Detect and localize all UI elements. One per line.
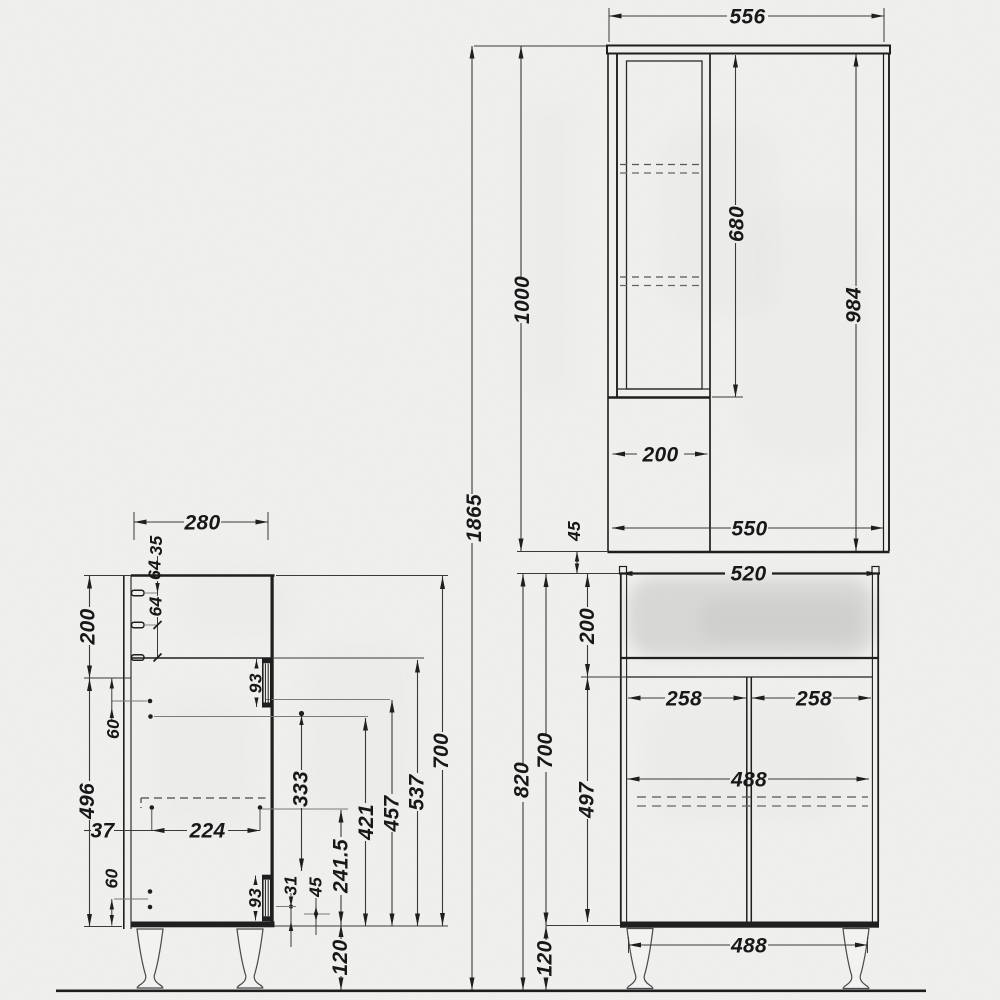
svg-text:60: 60 [103, 719, 123, 739]
svg-text:680: 680 [726, 206, 749, 242]
svg-text:93: 93 [245, 888, 265, 908]
svg-text:200: 200 [77, 609, 100, 646]
svg-text:984: 984 [843, 287, 866, 323]
svg-text:258: 258 [795, 688, 832, 711]
svg-text:37: 37 [91, 820, 116, 843]
svg-text:241.5: 241.5 [330, 839, 353, 894]
svg-text:31: 31 [281, 875, 301, 895]
svg-text:200: 200 [642, 444, 679, 467]
svg-text:224: 224 [189, 820, 226, 843]
svg-text:64: 64 [146, 596, 166, 616]
svg-text:258: 258 [665, 688, 702, 711]
svg-text:93: 93 [246, 673, 266, 693]
svg-text:537: 537 [406, 774, 429, 811]
svg-text:35: 35 [146, 535, 166, 555]
svg-text:45: 45 [306, 877, 326, 898]
svg-text:820: 820 [511, 762, 534, 798]
svg-text:60: 60 [102, 868, 122, 888]
svg-text:700: 700 [534, 733, 557, 769]
svg-text:120: 120 [329, 940, 352, 976]
svg-text:1000: 1000 [511, 276, 534, 324]
svg-text:556: 556 [730, 6, 766, 29]
svg-text:550: 550 [732, 518, 768, 541]
svg-text:333: 333 [290, 771, 313, 807]
svg-text:200: 200 [576, 608, 599, 645]
svg-text:1865: 1865 [463, 494, 486, 542]
svg-text:421: 421 [355, 804, 378, 841]
svg-text:45: 45 [564, 521, 584, 542]
svg-text:457: 457 [381, 795, 404, 833]
svg-text:488: 488 [730, 769, 767, 792]
svg-text:496: 496 [76, 783, 99, 820]
svg-text:488: 488 [730, 935, 767, 958]
svg-text:497: 497 [576, 781, 599, 819]
svg-text:700: 700 [430, 733, 453, 769]
svg-text:64: 64 [145, 560, 165, 580]
svg-text:120: 120 [534, 941, 557, 977]
svg-text:280: 280 [184, 512, 221, 535]
